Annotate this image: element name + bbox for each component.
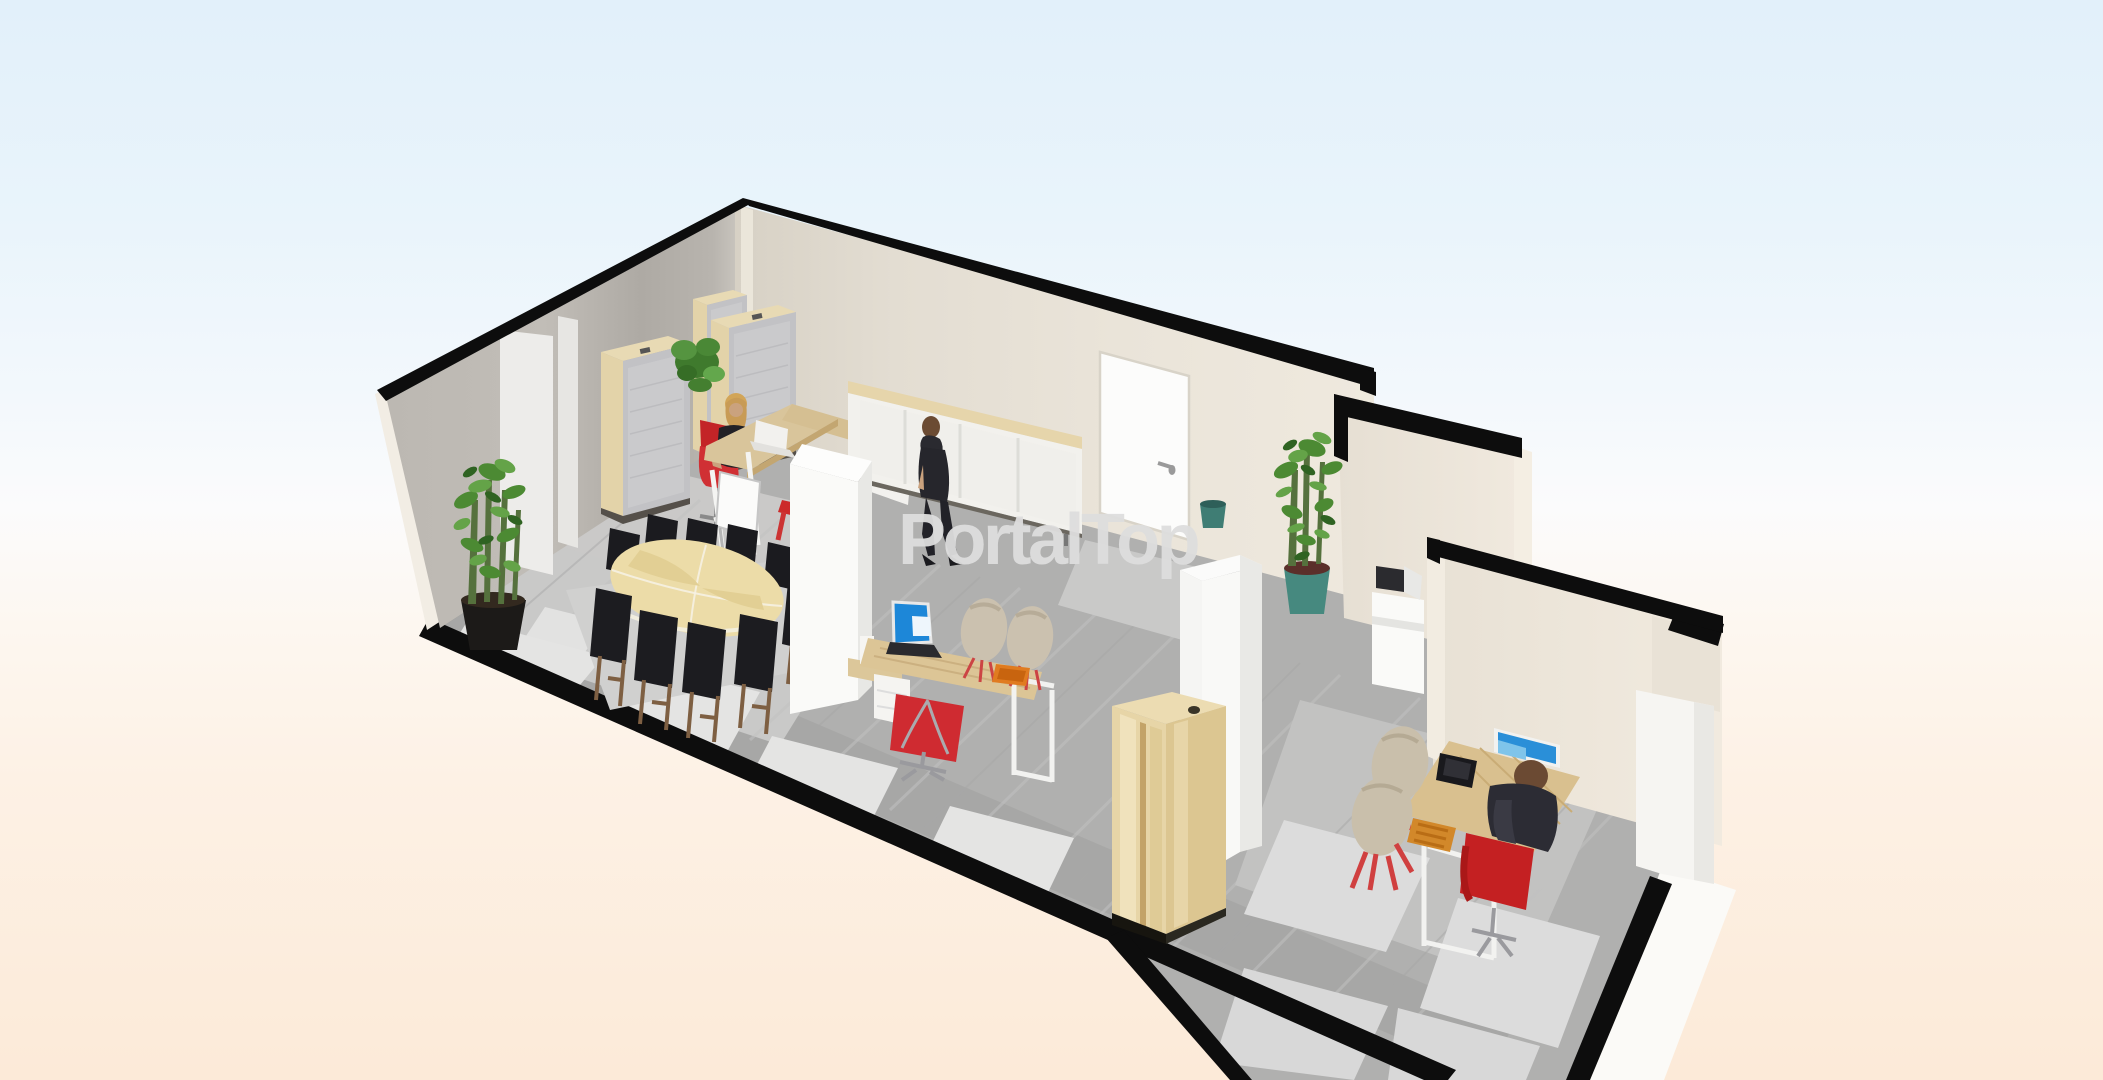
- svg-text:PortalTop: PortalTop: [898, 500, 1199, 580]
